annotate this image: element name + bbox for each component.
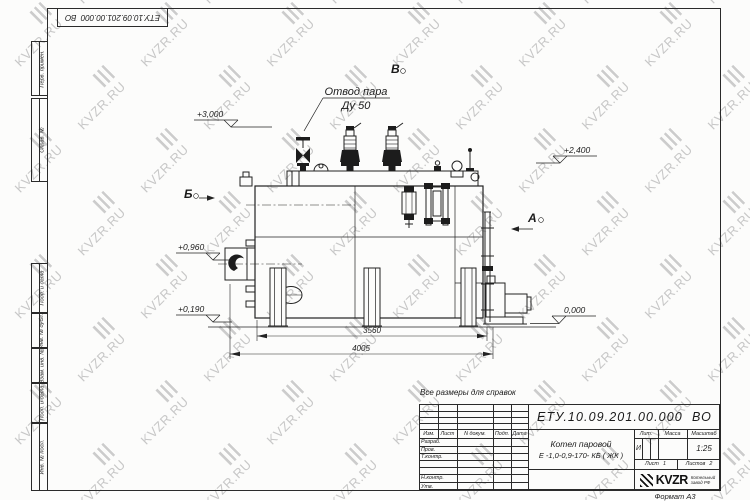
dim-4005: 4005 bbox=[352, 344, 370, 353]
dim-3560: 3560 bbox=[363, 326, 381, 335]
view-label-v: В bbox=[391, 62, 400, 76]
drawing-sheet: KVZR.RUKVZR.RUKVZR.RUKVZR.RUKVZR.RUKVZR.… bbox=[0, 0, 750, 500]
elevation-zero: 0,000 bbox=[564, 305, 586, 315]
elevation-plus-0190: +0,190 bbox=[178, 304, 205, 314]
elevation-plus-2400: +2,400 bbox=[564, 145, 591, 155]
view-label-b: Б bbox=[184, 187, 193, 201]
elevation-plus-0960: +0,960 bbox=[178, 242, 205, 252]
callout-steam-line2: Ду 50 bbox=[340, 100, 372, 112]
steam-outlet-valve bbox=[296, 137, 310, 171]
boiler-outline bbox=[208, 123, 556, 327]
view-label-a: А bbox=[527, 211, 537, 225]
water-gauge-1 bbox=[402, 186, 416, 228]
drum-fittings bbox=[434, 148, 479, 181]
boiler-drawing: Отвод пара Ду 50 Б В А +3,000 +2,400 +0,… bbox=[0, 0, 750, 500]
drawing-labels: Отвод пара Ду 50 Б В А +3,000 +2,400 +0,… bbox=[178, 62, 591, 353]
safety-valve-1 bbox=[340, 123, 361, 171]
elevation-plus-3000: +3,000 bbox=[197, 109, 224, 119]
water-gauge-2 bbox=[424, 183, 450, 225]
callout-steam-line1: Отвод пара bbox=[325, 86, 388, 98]
support-legs bbox=[268, 268, 478, 326]
safety-valve-2 bbox=[382, 123, 403, 171]
